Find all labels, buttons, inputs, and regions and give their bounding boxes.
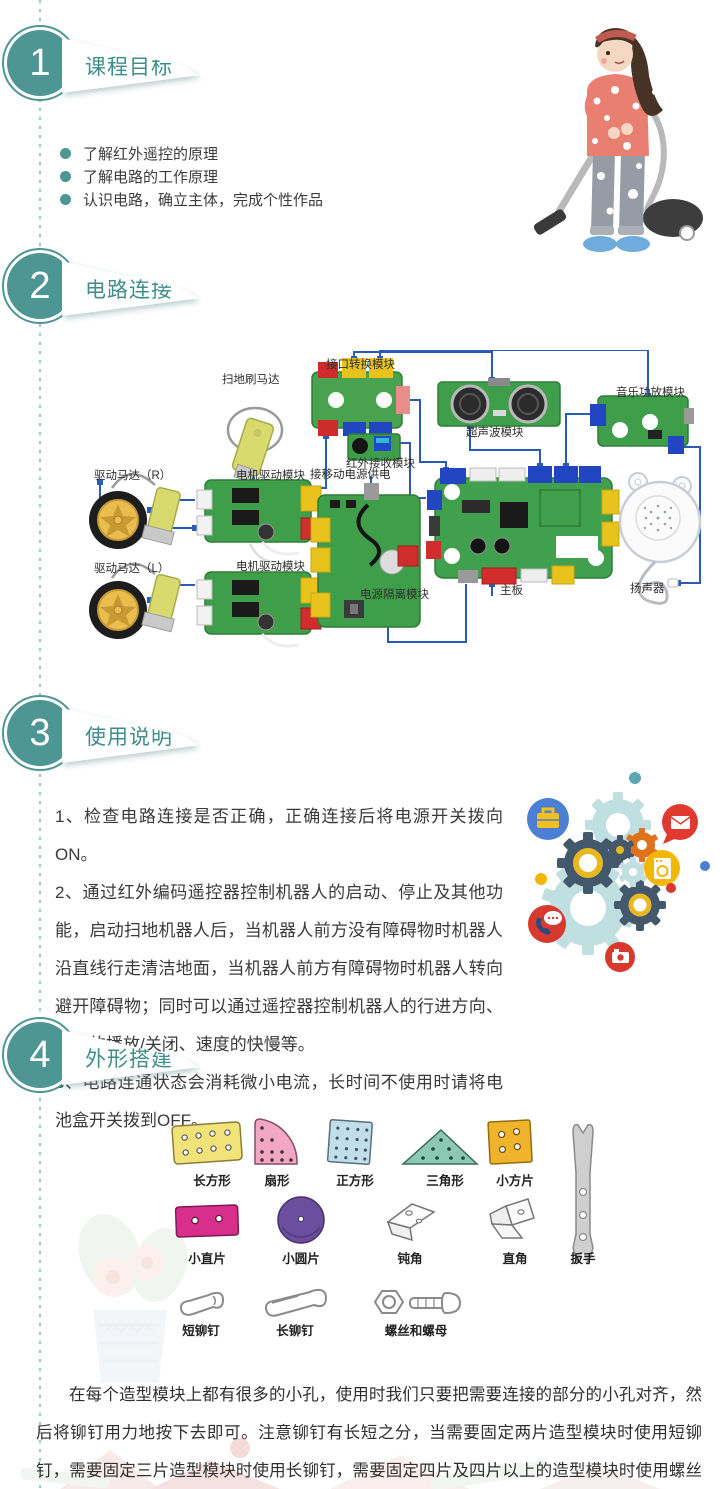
motor-driver-board-2 [197, 572, 321, 646]
section-title: 课程目标 [62, 38, 198, 93]
worksheet-page: 1 课程目标 2 电路连接 3 使用说明 4 外形搭建 了解红外遥控的原理 了解… [0, 0, 722, 1489]
label-drive-motor-l: 驱动马达（L） [94, 560, 169, 576]
assembly-note-text: 在每个造型模块上都有很多的小孔，使用时我们只要把需要连接的部分的小孔对齐，然后将… [36, 1376, 702, 1489]
music-amp-module-board [590, 396, 694, 454]
objective-item: 了解电路的工作原理 [60, 166, 218, 187]
bullet-dot-icon [60, 194, 71, 205]
label-sweep-motor: 扫地刷马达 [222, 371, 280, 387]
label-mainboard: 主板 [500, 582, 523, 598]
power-board [311, 483, 420, 627]
slipper [616, 236, 650, 252]
circuit-diagram [0, 350, 722, 665]
part-screw-and-nut [368, 1285, 464, 1325]
part-obtuse-bracket [378, 1196, 442, 1246]
part-label: 扳手 [518, 1248, 648, 1267]
label-ultrasonic-module: 超声波模块 [466, 424, 524, 440]
section-title: 电路连接 [62, 261, 198, 316]
usage-item-1: 1、检查电路连接是否正确，正确连接后将电源开关拨向ON。 [55, 798, 503, 874]
gears-and-icons-illustration [515, 762, 715, 987]
part-small-strip [170, 1198, 244, 1242]
mainboard [426, 466, 619, 584]
part-square [322, 1112, 378, 1170]
part-small-square [482, 1112, 538, 1170]
part-wrench [565, 1118, 601, 1268]
phone-icon [528, 905, 566, 943]
label-motor-driver-2: 电机驱动模块 [236, 558, 305, 574]
dot-decoration [535, 873, 547, 885]
label-interface-module: 接口转换模块 [326, 356, 395, 372]
washing-machine-icon [644, 850, 680, 886]
bullet-dot-icon [60, 171, 71, 182]
part-triangle [397, 1122, 483, 1168]
part-short-rivet [173, 1288, 229, 1324]
part-right-bracket [482, 1194, 546, 1246]
label-drive-motor-r: 驱动马达（R） [94, 467, 171, 483]
bullet-dot-icon [60, 148, 71, 159]
mail-icon [662, 804, 698, 844]
part-long-rivet [260, 1285, 330, 1325]
label-speaker: 扬声器 [630, 580, 665, 596]
part-small-disc [274, 1193, 328, 1247]
section-title: 外形搭建 [62, 1030, 198, 1085]
objective-item: 了解红外遥控的原理 [60, 143, 218, 164]
part-label: 长铆钉 [230, 1320, 360, 1339]
objective-text: 了解电路的工作原理 [83, 166, 218, 187]
gear-icon [614, 879, 666, 931]
camera-icon [605, 942, 635, 972]
objective-item: 认识电路，确立主体，完成个性作品 [60, 189, 323, 210]
briefcase-icon [527, 798, 569, 840]
section-title: 使用说明 [62, 708, 198, 763]
label-motor-driver-1: 电机驱动模块 [236, 467, 305, 483]
assembly-note: 在每个造型模块上都有很多的小孔，使用时我们只要把需要连接的部分的小孔对齐，然后将… [36, 1376, 702, 1489]
objective-text: 认识电路，确立主体，完成个性作品 [83, 189, 323, 210]
part-fan [242, 1112, 302, 1170]
drive-motor-r [89, 474, 184, 549]
slipper [583, 236, 617, 252]
objective-text: 了解红外遥控的原理 [83, 143, 218, 164]
vacuum-nozzle [532, 208, 567, 236]
label-power-input: 接移动电源供电 [310, 466, 391, 482]
dot-decoration [700, 861, 710, 871]
ultrasonic-module-board [438, 378, 560, 426]
dot-decoration [666, 883, 676, 893]
motor-driver-board-1 [197, 480, 321, 562]
part-label: 螺丝和螺母 [351, 1320, 481, 1339]
label-music-amp-module: 音乐功放模块 [616, 384, 685, 400]
label-power-isolation: 电源隔离模块 [360, 586, 429, 602]
part-rectangle [167, 1116, 247, 1168]
dot-decoration [629, 772, 641, 784]
usage-instructions: 1、检查电路连接是否正确，正确连接后将电源开关拨向ON。 2、通过红外编码遥控器… [55, 798, 503, 1140]
part-label: 小方片 [450, 1170, 580, 1189]
girl-vacuuming-illustration [515, 6, 715, 254]
